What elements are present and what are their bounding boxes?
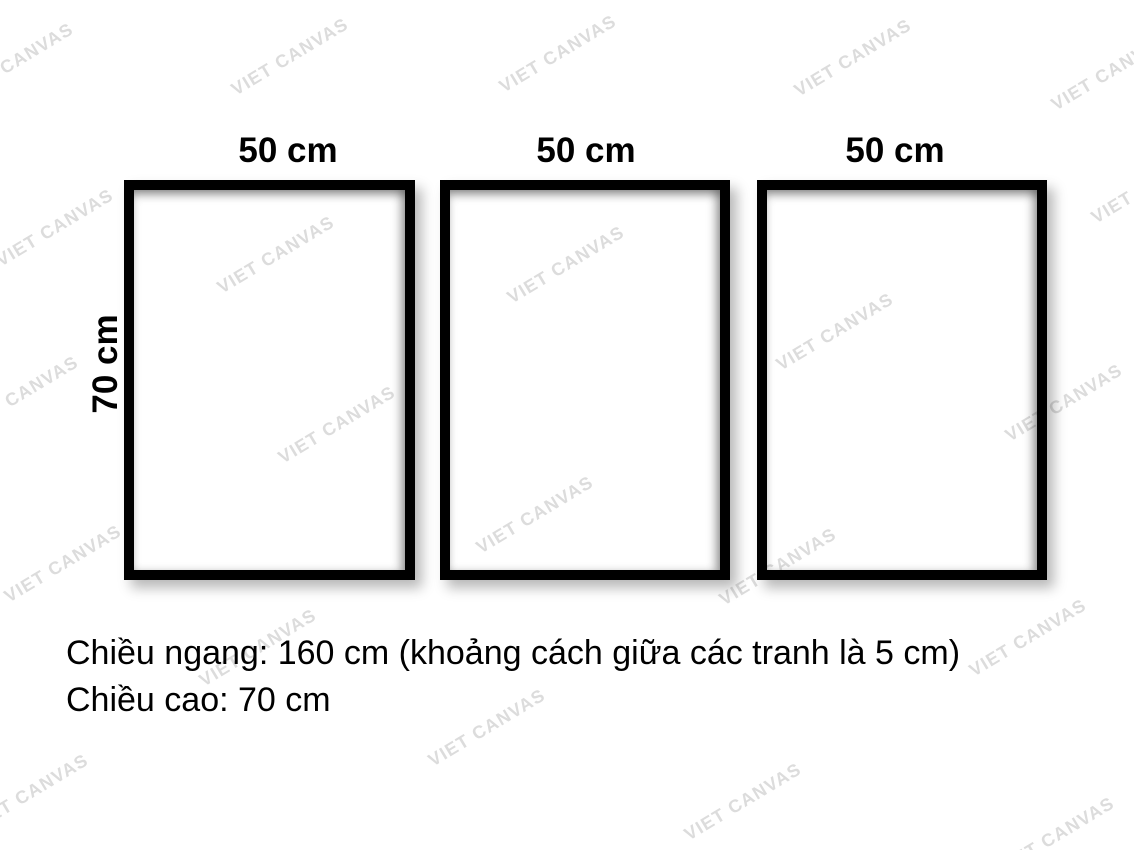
- watermark-text: VIET CANVAS: [0, 750, 92, 836]
- frame-3-width-label: 50 cm: [845, 131, 944, 171]
- watermark-text: VIET CANVAS: [1088, 142, 1134, 228]
- watermark-text: VIET CANVAS: [1048, 29, 1134, 115]
- frame-1-width-label: 50 cm: [238, 131, 337, 171]
- caption: Chiều ngang: 160 cm (khoảng cách giữa cá…: [66, 630, 960, 724]
- watermark-text: VIET CANVAS: [994, 793, 1119, 850]
- watermark-text: VIET CANVAS: [228, 14, 353, 100]
- frame-3: [757, 180, 1047, 580]
- watermark-text: VIET CANVAS: [0, 19, 77, 105]
- watermark-text: VIET CANVAS: [966, 595, 1091, 681]
- watermark-text: VIET CANVAS: [496, 11, 621, 97]
- watermark-text: VIET CANVAS: [681, 759, 806, 845]
- caption-height-line: Chiều cao: 70 cm: [66, 677, 960, 724]
- frame-2-width-label: 50 cm: [536, 131, 635, 171]
- caption-width-line: Chiều ngang: 160 cm (khoảng cách giữa cá…: [66, 630, 960, 677]
- frame-2: [440, 180, 730, 580]
- watermark-text: VIET CANVAS: [1, 521, 126, 607]
- watermark-text: VIET CANVAS: [0, 352, 82, 438]
- frame-1: [124, 180, 415, 580]
- watermark-text: VIET CANVAS: [0, 185, 117, 271]
- frame-height-label: 70 cm: [86, 314, 126, 413]
- watermark-text: VIET CANVAS: [791, 15, 916, 101]
- dimension-diagram: VIET CANVASVIET CANVASVIET CANVASVIET CA…: [0, 0, 1134, 850]
